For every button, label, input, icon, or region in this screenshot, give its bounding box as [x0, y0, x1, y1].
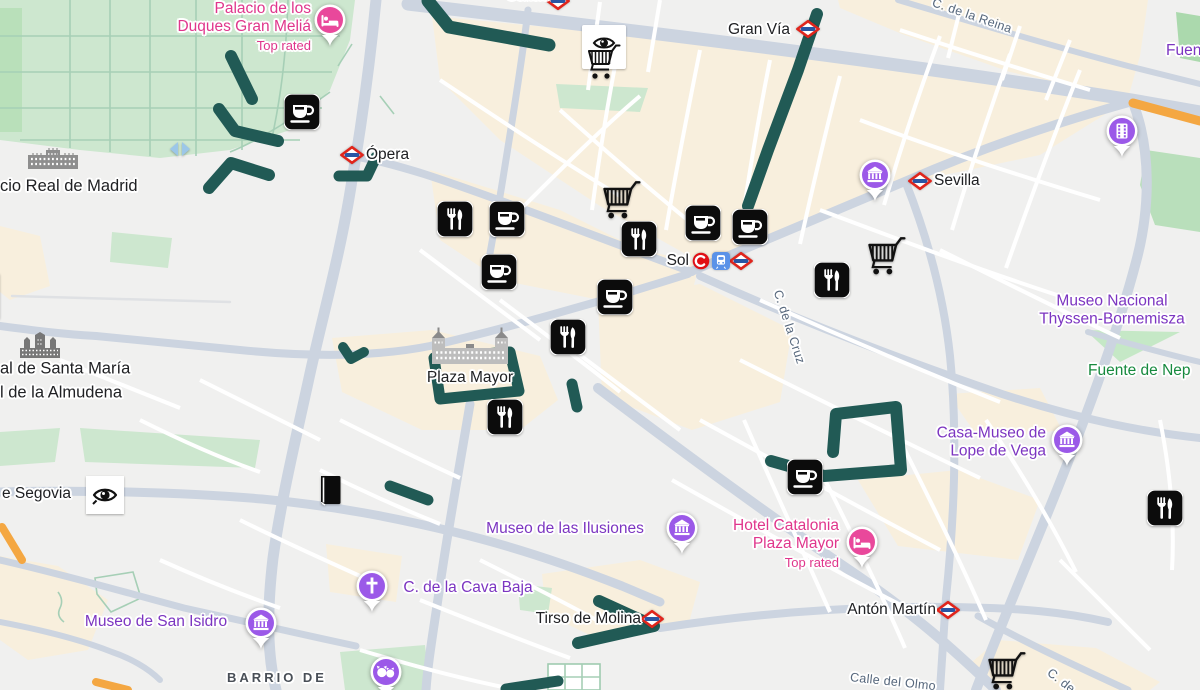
coffee-marker[interactable]: [489, 201, 525, 237]
label-fuen-fragment[interactable]: Fuen: [1166, 42, 1200, 60]
label-thyssen[interactable]: Museo NacionalThyssen-Bornemisza: [1039, 293, 1185, 330]
coffee-icon: [597, 279, 633, 315]
museum-pin[interactable]: [243, 605, 279, 651]
label-text: C. de: [1044, 666, 1078, 690]
restaurant-icon: [487, 399, 523, 435]
label-text: Calle del Olmo: [849, 670, 936, 690]
bed-pin-icon: [844, 524, 880, 570]
metro-icon: [936, 601, 960, 620]
museum-pin[interactable]: [664, 510, 700, 556]
metro-icon: [908, 172, 932, 191]
label-text: Museo NacionalThyssen-Bornemisza: [1039, 293, 1185, 330]
label-palacio-duques[interactable]: Palacio de losDuques Gran MeliáTop rated: [177, 0, 311, 54]
label-hotel-catalonia[interactable]: Hotel CataloniaPlaza MayorTop rated: [733, 517, 839, 571]
church-pin[interactable]: [354, 568, 390, 614]
film-pin-icon: [1104, 113, 1140, 159]
restaurant-marker[interactable]: [550, 319, 586, 355]
museum-pin-icon: [857, 157, 893, 203]
map-canvas[interactable]: ›CallaoGran VíaÓperaSevillaSolPlaza Mayo…: [0, 0, 1200, 690]
label-museo-san-isidro[interactable]: Museo de San Isidro: [85, 613, 227, 631]
coffee-icon: [489, 201, 525, 237]
restaurant-icon: [550, 319, 586, 355]
label-tirso-de-molina[interactable]: Tirso de Molina: [536, 610, 641, 628]
top-rated-badge: Top rated: [733, 555, 839, 572]
label-sevilla[interactable]: Sevilla: [934, 172, 980, 190]
cart-marker[interactable]: [862, 235, 908, 277]
label-text: cio Real de Madrid: [0, 174, 138, 198]
coffee-icon: [685, 205, 721, 241]
label-text: Sol: [667, 252, 689, 270]
coffee-icon: [481, 254, 517, 290]
label-calle-de-fragment: C. de: [1045, 674, 1076, 689]
museum-pin-icon: [243, 605, 279, 651]
label-text: C. de la Cruz: [770, 288, 808, 366]
label-text: Tirso de Molina: [536, 610, 641, 628]
metro-icon: [796, 20, 820, 39]
coffee-icon: [732, 209, 768, 245]
palace-icon: [27, 146, 79, 174]
label-text: Antón Martín: [847, 601, 936, 619]
label-text: Gran Vía: [728, 21, 790, 39]
plaza-building-icon: [426, 326, 514, 372]
cart-icon: [982, 650, 1028, 690]
restaurant-marker[interactable]: [814, 262, 850, 298]
coffee-icon: [787, 459, 823, 495]
label-text: al de Santa Maríal de la Almudena: [0, 357, 130, 406]
train-station[interactable]: [712, 252, 730, 270]
label-text: Casa-Museo deLope de Vega: [937, 425, 1046, 462]
label-museo-ilusiones[interactable]: Museo de las Ilusiones: [486, 520, 644, 538]
map-overlay: ›CallaoGran VíaÓperaSevillaSolPlaza Mayo…: [0, 0, 1200, 690]
coffee-marker[interactable]: [481, 254, 517, 290]
cart-eye-marker[interactable]: [581, 24, 627, 84]
pets-pin[interactable]: [368, 654, 404, 690]
arrows-marker[interactable]: [169, 142, 191, 156]
label-text: Plaza Mayor: [427, 369, 513, 387]
label-text: Fuen: [1166, 42, 1200, 60]
restaurant-marker[interactable]: [487, 399, 523, 435]
metro-station[interactable]: [908, 172, 932, 191]
eye-marker[interactable]: [86, 476, 124, 514]
cercanias-icon: [692, 252, 710, 270]
museum-pin[interactable]: [857, 157, 893, 203]
restaurant-icon: [437, 201, 473, 237]
label-text: Sevilla: [934, 172, 980, 190]
label-text: Callao: [506, 0, 550, 5]
label-callao[interactable]: Callao: [506, 0, 550, 5]
metro-icon: [340, 146, 364, 165]
restaurant-icon: [1147, 490, 1183, 526]
church-pin-icon: [354, 568, 390, 614]
top-rated-badge: Top rated: [177, 38, 311, 55]
label-calle-olmo: Calle del Olmo: [850, 675, 936, 690]
label-text: C. de la Reina: [930, 0, 1014, 37]
metro-station[interactable]: [729, 252, 753, 271]
bed-pin[interactable]: [312, 2, 348, 48]
metro-station[interactable]: [796, 20, 820, 39]
metro-icon: [729, 252, 753, 271]
label-calle-cruz: C. de la Cruz: [751, 320, 828, 335]
bed-pin-icon: [312, 2, 348, 48]
restaurant-marker[interactable]: [437, 201, 473, 237]
arrows-icon: [169, 142, 191, 156]
metro-station[interactable]: [936, 601, 960, 620]
coffee-marker[interactable]: [732, 209, 768, 245]
museum-pin[interactable]: [1049, 422, 1085, 468]
cart-marker[interactable]: [982, 650, 1028, 690]
restaurant-icon: [814, 262, 850, 298]
label-calle-reina: C. de la Reina: [930, 9, 1013, 24]
label-text: BARRIO DELA LATINA: [227, 668, 327, 690]
eye-icon: [86, 476, 124, 514]
label-text: Fuente de Nep: [1088, 362, 1191, 380]
label-opera[interactable]: Ópera: [366, 146, 409, 164]
label-gran-via[interactable]: Gran Vía: [728, 21, 790, 39]
train-icon: [712, 252, 730, 270]
label-cava-baja[interactable]: C. de la Cava Baja: [403, 579, 532, 597]
restaurant-marker[interactable]: [1147, 490, 1183, 526]
label-anton-martin[interactable]: Antón Martín: [847, 601, 936, 619]
label-barrio-la-latina: BARRIO DELA LATINA: [227, 668, 327, 690]
book-marker[interactable]: [317, 474, 343, 506]
cart-eye-icon: [581, 24, 627, 84]
label-lope-de-vega[interactable]: Casa-Museo deLope de Vega: [937, 425, 1046, 462]
plaza-building-building[interactable]: [426, 326, 514, 372]
coffee-marker[interactable]: [787, 459, 823, 495]
label-text: Museo de las Ilusiones: [486, 520, 644, 538]
film-pin[interactable]: [1104, 113, 1140, 159]
metro-station[interactable]: [340, 146, 364, 165]
label-segovia-fragment[interactable]: e Segovia: [2, 485, 71, 503]
coffee-marker[interactable]: [284, 94, 320, 130]
restaurant-icon: [621, 221, 657, 257]
cart-icon: [862, 235, 908, 277]
label-plaza-mayor[interactable]: Plaza Mayor: [427, 369, 513, 387]
palace-building[interactable]: [27, 146, 79, 174]
cart-icon: [597, 179, 643, 221]
metro-station[interactable]: [640, 610, 664, 629]
museum-pin-icon: [1049, 422, 1085, 468]
coffee-icon: [284, 94, 320, 130]
book-icon: [317, 474, 343, 506]
label-fuente-neptuno-fragment[interactable]: Fuente de Nep: [1088, 362, 1191, 380]
coffee-marker[interactable]: [597, 279, 633, 315]
label-text: Ópera: [366, 146, 409, 164]
label-text: Hotel CataloniaPlaza MayorTop rated: [733, 517, 839, 571]
metro-icon: [640, 610, 664, 629]
cercanias-station[interactable]: [692, 252, 710, 270]
label-text: Museo de San Isidro: [85, 613, 227, 631]
label-text: e Segovia: [2, 485, 71, 503]
pets-pin-icon: [368, 654, 404, 690]
label-sol[interactable]: Sol: [667, 252, 689, 270]
bed-pin[interactable]: [844, 524, 880, 570]
coffee-marker[interactable]: [685, 205, 721, 241]
restaurant-marker[interactable]: [621, 221, 657, 257]
label-almudena-fragment[interactable]: al de Santa Maríal de la Almudena: [0, 357, 130, 406]
cart-marker[interactable]: [597, 179, 643, 221]
label-palacio-real-fragment[interactable]: cio Real de Madrid: [0, 174, 138, 198]
museum-pin-icon: [664, 510, 700, 556]
label-text: Palacio de losDuques Gran MeliáTop rated: [177, 0, 311, 54]
label-text: C. de la Cava Baja: [403, 579, 532, 597]
